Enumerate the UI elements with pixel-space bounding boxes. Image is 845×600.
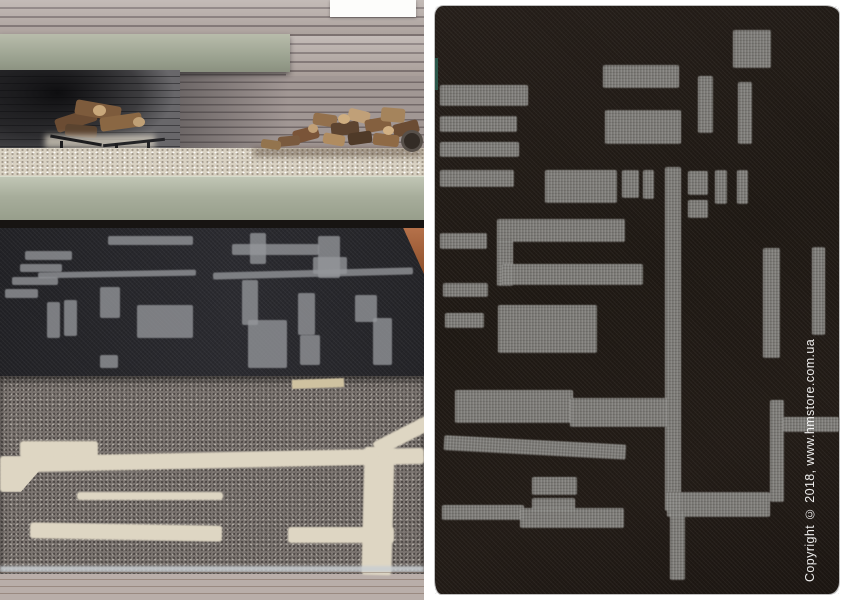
- log-cut-end: [383, 126, 394, 135]
- rug-pattern-block: [100, 287, 120, 318]
- log-cut-end: [133, 117, 145, 127]
- rug-pattern-block: [137, 305, 193, 338]
- rug-pattern-block: [812, 247, 825, 335]
- rug-pattern-block: [688, 200, 708, 218]
- rug-pattern-block: [64, 300, 77, 336]
- rug-pattern-block: [108, 236, 193, 245]
- rug-cream-stripe: [30, 522, 222, 541]
- log-cut-end: [93, 105, 106, 116]
- rug-pattern-block: [442, 505, 524, 520]
- rug-pattern-block: [242, 280, 258, 325]
- grey-rug-in-room: [0, 376, 424, 574]
- rug-pattern-block: [498, 305, 597, 353]
- rug-pattern-block: [5, 289, 38, 298]
- rug-pattern-block: [298, 293, 315, 335]
- rug-pattern-block: [770, 400, 784, 502]
- rug-pattern-block: [545, 170, 617, 203]
- rug-pattern-block: [232, 244, 319, 255]
- concrete-mantel-beam: [0, 34, 290, 72]
- rug-pattern-block: [570, 398, 668, 427]
- rug-pattern-block: [445, 313, 484, 328]
- gallery-image-interior[interactable]: [0, 0, 424, 600]
- firewood-log: [347, 130, 372, 145]
- rug-pattern-block: [737, 170, 748, 204]
- rug-pattern-block: [440, 170, 514, 187]
- firewood-pile: [253, 102, 424, 160]
- rug-pattern-block: [440, 116, 517, 132]
- firewood-log: [372, 133, 399, 148]
- rug-pattern-block: [100, 355, 118, 368]
- rug-pattern-block: [248, 320, 287, 368]
- rug-pattern-block: [688, 171, 708, 195]
- rug-pattern-block: [25, 251, 72, 260]
- log-cut-end: [308, 124, 318, 133]
- rug-pattern-block: [670, 512, 685, 580]
- firewood-log: [278, 135, 301, 147]
- page: Copyright © 2018, www.hmstore.com.ua: [0, 0, 845, 600]
- rug-pattern-block: [605, 110, 681, 144]
- rug-pattern-block: [497, 219, 625, 242]
- dark-log-disc: [401, 130, 423, 152]
- rug-pattern-block: [643, 170, 654, 199]
- firewood-log: [380, 107, 405, 123]
- rug-pattern-block: [12, 277, 58, 285]
- rug-pattern-block: [440, 233, 487, 249]
- rug-pattern-block: [532, 477, 577, 495]
- rug-pattern-block: [665, 167, 681, 511]
- rug-cream-stripe: [77, 492, 223, 500]
- rug-pattern-block: [763, 248, 780, 358]
- log-cut-end: [338, 114, 350, 124]
- rug-pattern-block: [455, 390, 573, 423]
- rug-pattern-block: [603, 65, 679, 88]
- hearth-slab: [0, 176, 424, 222]
- rug-pattern-block: [373, 318, 392, 365]
- brick-wall-right: [286, 36, 424, 76]
- rug-pattern-block: [520, 508, 624, 528]
- white-paper: [330, 0, 416, 17]
- rug-pattern-block: [440, 85, 528, 106]
- rug-pattern-block: [443, 283, 488, 297]
- wood-floor: [0, 572, 424, 600]
- rug-pattern-block: [440, 142, 519, 157]
- rug-pattern-block: [47, 302, 60, 338]
- rug-pattern-block: [698, 76, 713, 133]
- rug-edge-teal-fleck: [435, 58, 438, 90]
- rug-pattern-block: [313, 257, 347, 274]
- copyright-watermark: Copyright © 2018, www.hmstore.com.ua: [800, 338, 820, 582]
- gallery-image-product[interactable]: [435, 6, 839, 594]
- rug-pattern-block: [715, 170, 727, 204]
- rug-pattern-block: [733, 30, 771, 68]
- rug-label-tag: [292, 378, 344, 389]
- rug-pattern-block: [300, 335, 320, 365]
- rug-pattern-block: [738, 82, 752, 144]
- rug-pattern-block: [20, 264, 62, 272]
- rug-pattern-block: [622, 170, 639, 198]
- rug-cream-stripe: [288, 527, 394, 543]
- rug-cream-stripe: [361, 447, 394, 576]
- firebox-log-group: [45, 95, 165, 153]
- rug-pattern-block: [502, 264, 643, 285]
